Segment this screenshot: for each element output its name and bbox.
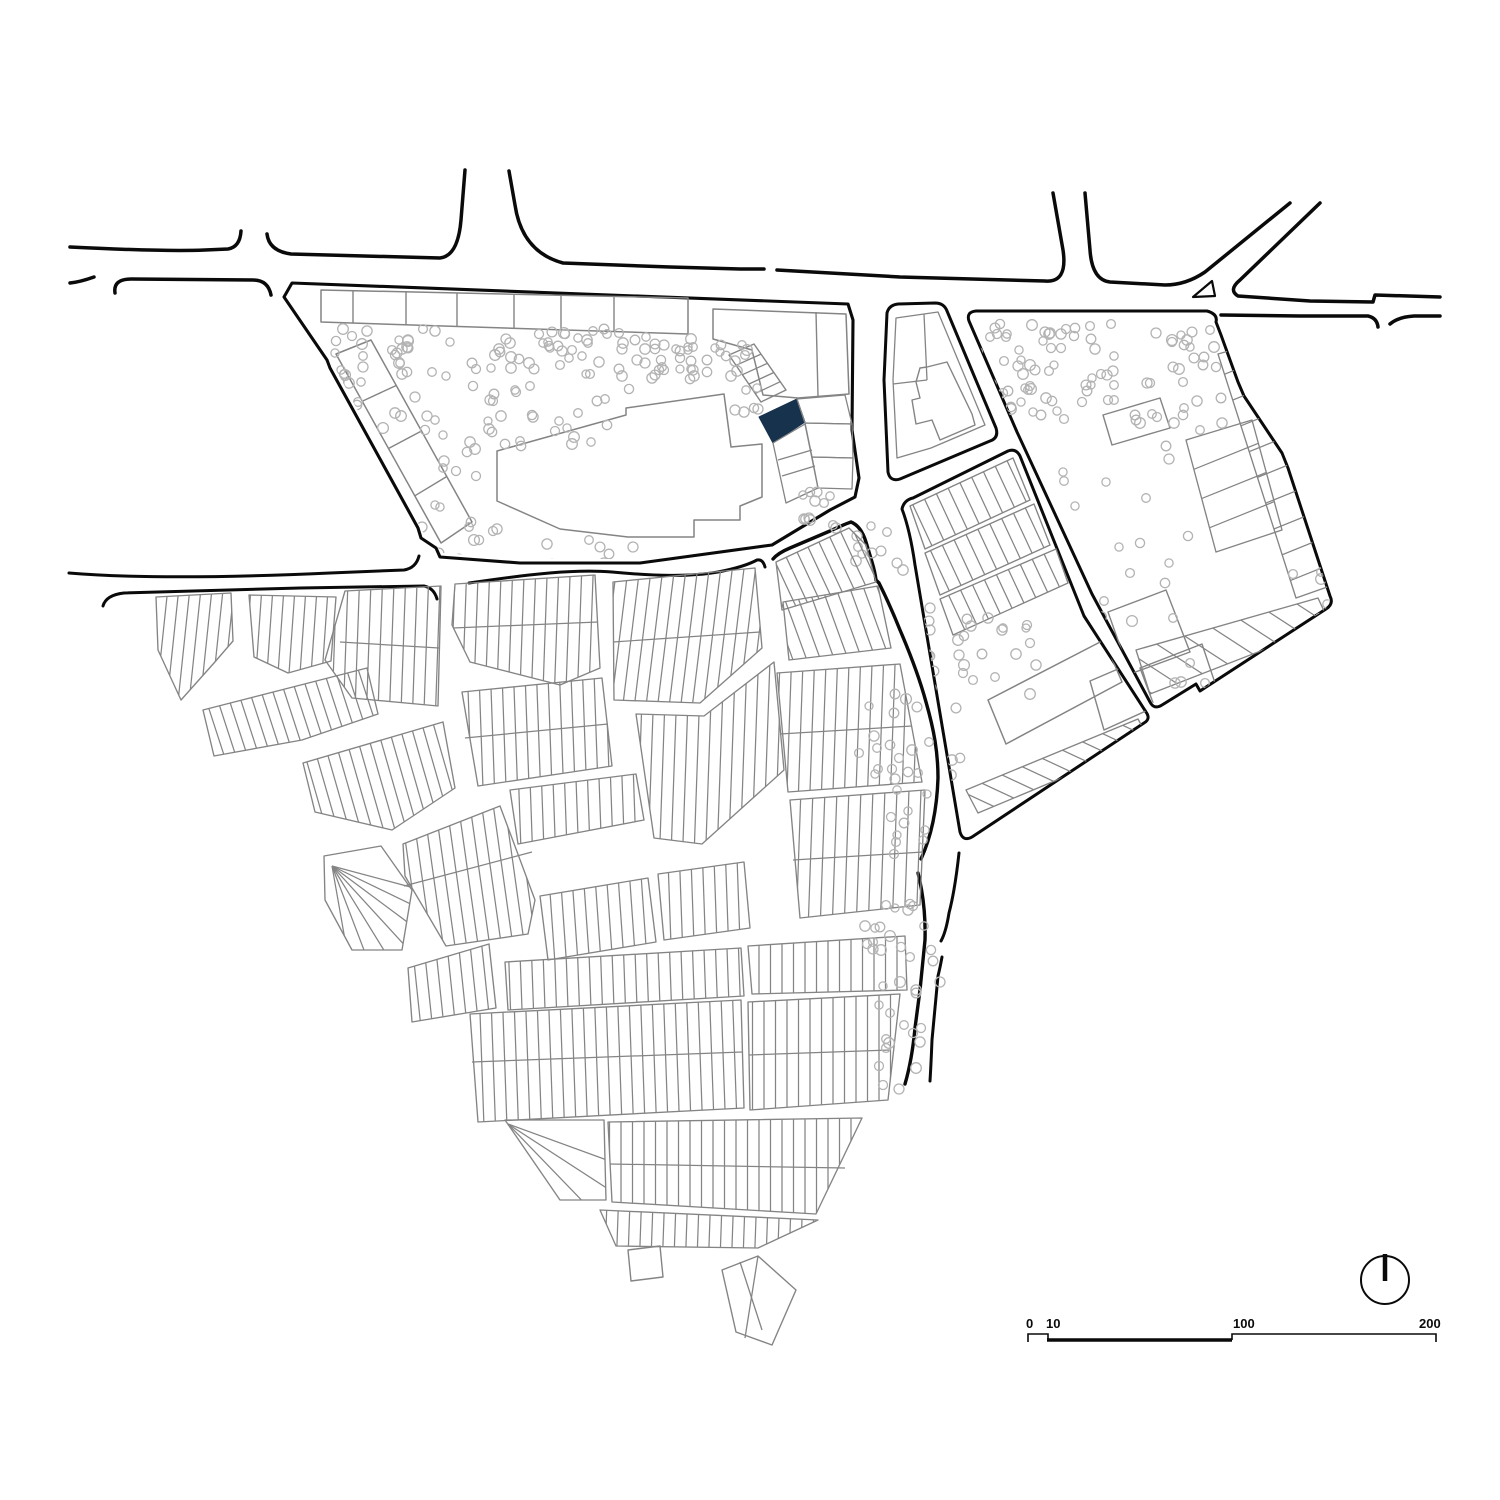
svg-text:200: 200 [1419,1316,1441,1331]
svg-text:10: 10 [1046,1316,1060,1331]
svg-text:0: 0 [1026,1316,1033,1331]
svg-text:100: 100 [1233,1316,1255,1331]
